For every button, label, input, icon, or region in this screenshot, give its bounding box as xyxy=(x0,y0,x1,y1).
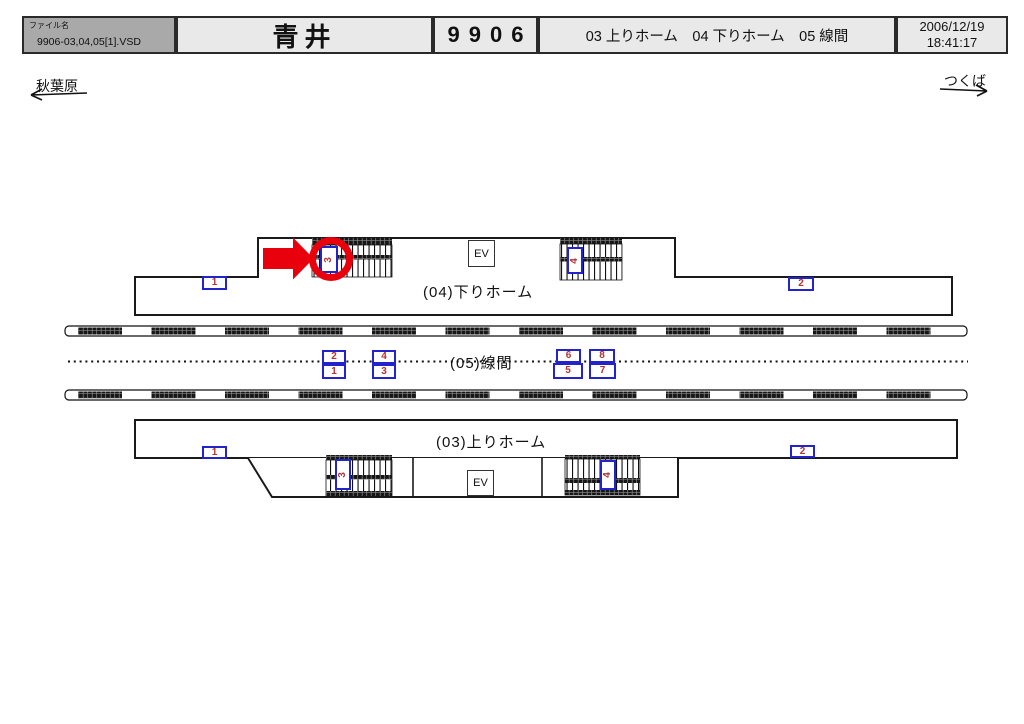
station-code: 9906 xyxy=(448,22,533,48)
direction-left-label: 秋葉原 xyxy=(36,76,78,96)
up-platform-label: (03)上りホーム xyxy=(436,431,546,452)
sign-upper-stair-4: 4 xyxy=(567,247,583,274)
sign-lower-2: 2 xyxy=(790,445,815,458)
sign-mid-2: 2 xyxy=(322,350,346,364)
sign-mid-3: 3 xyxy=(372,364,396,379)
sheet-sections: 03 上りホーム 04 下りホーム 05 線間 xyxy=(586,25,849,46)
elevator-box-lower: EV xyxy=(467,470,494,496)
sign-mid-8: 8 xyxy=(589,349,615,363)
date-text: 2006/12/19 xyxy=(919,19,984,36)
station-diagram-page: ファイル名 9906-03,04,05[1].VSD 青井 9906 03 上り… xyxy=(0,0,1024,724)
elevator-label: EV xyxy=(473,477,488,489)
elevator-label: EV xyxy=(474,248,489,260)
between-lines-label: (05)線間 xyxy=(450,352,513,373)
upper-platform-outline xyxy=(135,238,952,315)
elevator-box-upper: EV xyxy=(468,240,495,267)
filename-box: ファイル名 9906-03,04,05[1].VSD xyxy=(22,16,176,54)
sign-upper-stair-3-highlighted: 3 xyxy=(320,246,338,273)
sign-mid-6: 6 xyxy=(556,349,581,363)
filename-value: 9906-03,04,05[1].VSD xyxy=(37,36,141,48)
sign-lower-stair-3: 3 xyxy=(335,459,351,490)
sign-lower-stair-4: 4 xyxy=(600,460,616,490)
sign-upper-1: 1 xyxy=(202,276,227,290)
time-text: 18:41:17 xyxy=(927,35,978,52)
down-platform-label: (04)下りホーム xyxy=(423,281,533,302)
sign-mid-4: 4 xyxy=(372,350,396,364)
sign-upper-2: 2 xyxy=(788,277,814,291)
station-name-box: 青井 xyxy=(176,16,433,54)
datetime-box: 2006/12/19 18:41:17 xyxy=(896,16,1008,54)
sheet-sections-box: 03 上りホーム 04 下りホーム 05 線間 xyxy=(538,16,896,54)
direction-right-label: つくば xyxy=(944,71,986,91)
filename-label: ファイル名 xyxy=(29,20,69,31)
station-name: 青井 xyxy=(272,17,336,54)
sign-mid-5: 5 xyxy=(553,363,583,379)
sign-mid-1: 1 xyxy=(322,364,346,379)
sign-mid-7: 7 xyxy=(589,363,616,379)
sign-lower-1: 1 xyxy=(202,446,227,459)
station-code-box: 9906 xyxy=(433,16,538,54)
